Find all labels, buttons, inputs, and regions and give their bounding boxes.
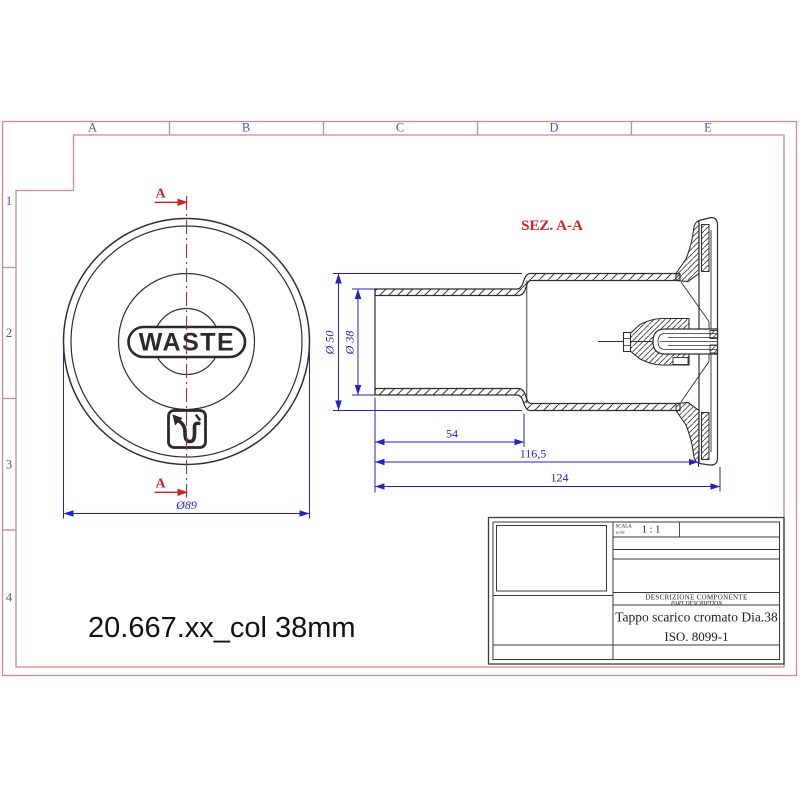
stem-lock-top (710, 331, 718, 339)
dim-text-38: Ø 38 (343, 331, 357, 356)
logo-box (497, 526, 607, 592)
scale-value: 1 : 1 (642, 525, 661, 536)
dim-length-116: 116,5 (375, 447, 699, 468)
dim-length-124: 124 (375, 467, 720, 492)
row-ticks (3, 268, 17, 531)
dim-text-116: 116,5 (520, 447, 547, 461)
title-block: SCALA scale 1 : 1 DESCRIZIONE COMPONENTE… (489, 518, 785, 665)
section-view: SEZ. A-A (323, 218, 721, 493)
tube-wall-top (375, 274, 680, 296)
dim-text-50: Ø 50 (323, 331, 337, 356)
column-label-d: D (549, 121, 558, 135)
dim-text-89: Ø89 (175, 498, 197, 512)
dim-diameter-38: Ø 38 (343, 289, 376, 395)
stem-lock-bottom (710, 345, 718, 353)
row-label-1: 1 (6, 194, 12, 208)
cad-drawing: A B C D E 1 2 3 4 WASTE (0, 0, 800, 800)
component-name: Tappo scarico cromato Dia.38 (615, 610, 778, 625)
standard-number: ISO. 8099-1 (664, 629, 728, 644)
flange-bell-bottom (676, 403, 699, 464)
scale-label-en: scale (616, 530, 625, 535)
section-letter-top: A (155, 187, 166, 202)
section-dimensions: Ø 50 Ø 38 54 (323, 274, 721, 493)
cap-tab-bottom (702, 413, 710, 460)
cap-tab-top (702, 225, 710, 272)
description-label-en: PART DESCRIPTION (670, 601, 723, 607)
row-label-4: 4 (6, 591, 13, 605)
column-labels: A B C D E (88, 121, 712, 135)
flange-bell-top (676, 221, 699, 282)
dim-text-54: 54 (446, 427, 458, 441)
sheet-inner-frame (16, 135, 784, 667)
row-label-2: 2 (6, 326, 12, 340)
column-label-e: E (704, 121, 712, 135)
front-view: WASTE A A Ø89 (64, 187, 310, 519)
dim-text-124: 124 (551, 471, 569, 485)
tube-wall-bottom (375, 389, 680, 411)
row-labels: 1 2 3 4 (6, 194, 13, 605)
column-label-a: A (88, 121, 97, 135)
dim-length-54: 54 (375, 398, 524, 493)
stem-tip (624, 333, 631, 352)
section-title: SEZ. A-A (521, 218, 583, 234)
valve-seat-step (673, 358, 688, 365)
drawing-sheet: A B C D E 1 2 3 4 WASTE (0, 0, 800, 800)
section-letter-bottom: A (155, 477, 166, 492)
column-label-c: C (396, 121, 404, 135)
column-label-b: B (242, 121, 250, 135)
row-label-3: 3 (6, 458, 12, 472)
drawing-title: 20.667.xx_col 38mm (88, 612, 356, 644)
